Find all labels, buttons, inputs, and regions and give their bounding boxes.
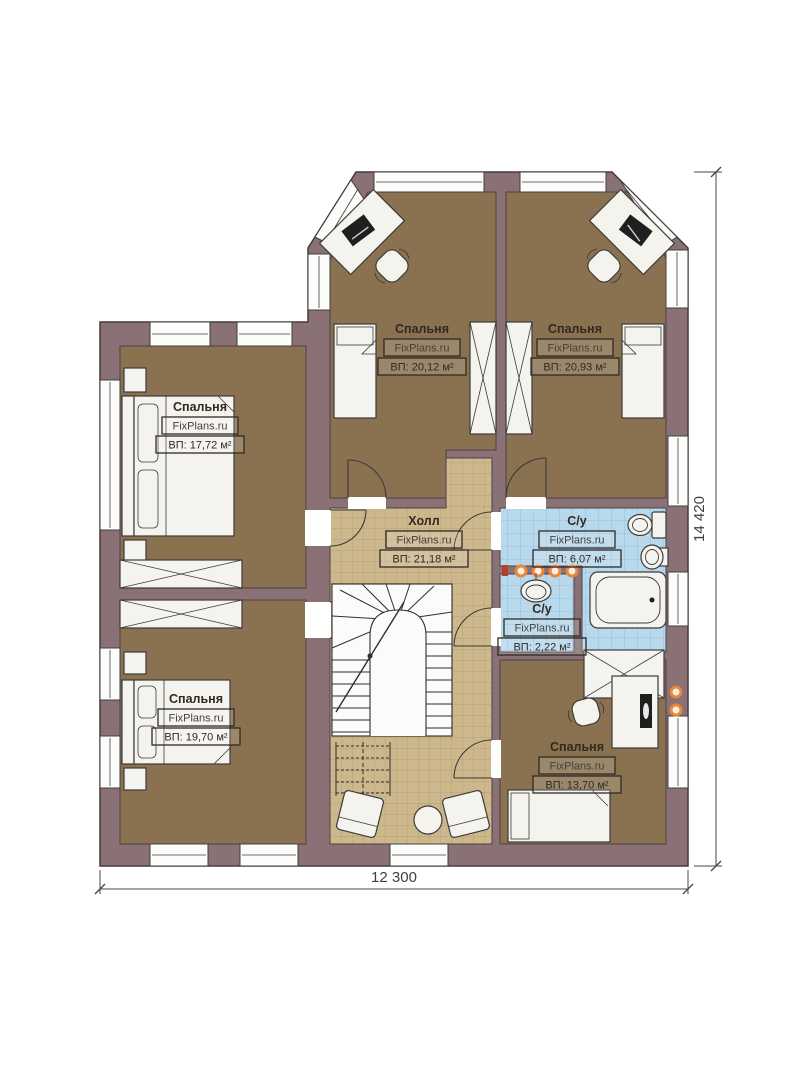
window [150,322,210,346]
room-area: ВП: 13,70 м² [545,780,609,792]
watermark: FixPlans.ru [549,761,604,773]
room-name: Спальня [550,740,604,754]
floor-plan-canvas: Спальня FixPlans.ru ВП: 20,12 м² Спальня… [0,0,792,1080]
room-name: С/у [567,514,587,528]
room-name: С/у [532,602,552,616]
window [390,844,448,866]
room-area: ВП: 17,72 м² [168,440,232,452]
dimension-bottom: 12 300 [95,869,693,894]
room-area: ВП: 6,07 м² [548,554,605,566]
sink [641,545,668,569]
window [100,648,120,700]
dimension-height-label: 14 420 [691,496,708,542]
watermark: FixPlans.ru [396,535,451,547]
nightstand [124,368,146,392]
nightstand [124,768,146,790]
room-area: ВП: 20,93 м² [543,362,607,374]
watermark: FixPlans.ru [168,713,223,725]
toilet [628,512,666,538]
room-name: Холл [408,514,439,528]
bathtub [590,572,666,628]
window [150,844,208,866]
watermark: FixPlans.ru [514,623,569,635]
wardrobe [506,322,532,434]
room-name: Спальня [395,322,449,336]
window [668,436,688,506]
stair-rail-post [368,654,373,659]
room-name: Спальня [169,692,223,706]
single-bed [622,324,664,418]
room-area: ВП: 19,70 м² [164,732,228,744]
watermark: FixPlans.ru [394,343,449,355]
room-name: Спальня [173,400,227,414]
window [374,172,484,192]
wardrobe [120,600,242,628]
armchair [336,790,384,838]
wardrobe [470,322,496,434]
room-name: Спальня [548,322,602,336]
watermark: FixPlans.ru [172,421,227,433]
window [240,844,298,866]
window [668,572,688,626]
nightstand [124,652,146,674]
watermark: FixPlans.ru [549,535,604,547]
room-area: ВП: 21,18 м² [392,554,456,566]
window [100,380,120,530]
window [520,172,606,192]
desk [612,676,658,748]
round-table [414,806,442,834]
armchair [442,790,490,838]
room-area: ВП: 2,22 м² [513,642,570,654]
dimension-right: 14 420 [691,167,722,871]
floor-plan: Спальня FixPlans.ru ВП: 20,12 м² Спальня… [0,0,792,1080]
window [666,250,688,308]
single-bed [334,324,376,418]
wardrobe [120,560,242,588]
watermark: FixPlans.ru [547,343,602,355]
single-bed [508,790,610,842]
window [308,254,330,310]
room-area: ВП: 20,12 м² [390,362,454,374]
stair-void [370,610,426,736]
window [237,322,292,346]
window [668,716,688,788]
dimension-width-label: 12 300 [371,869,417,886]
window [100,736,120,788]
